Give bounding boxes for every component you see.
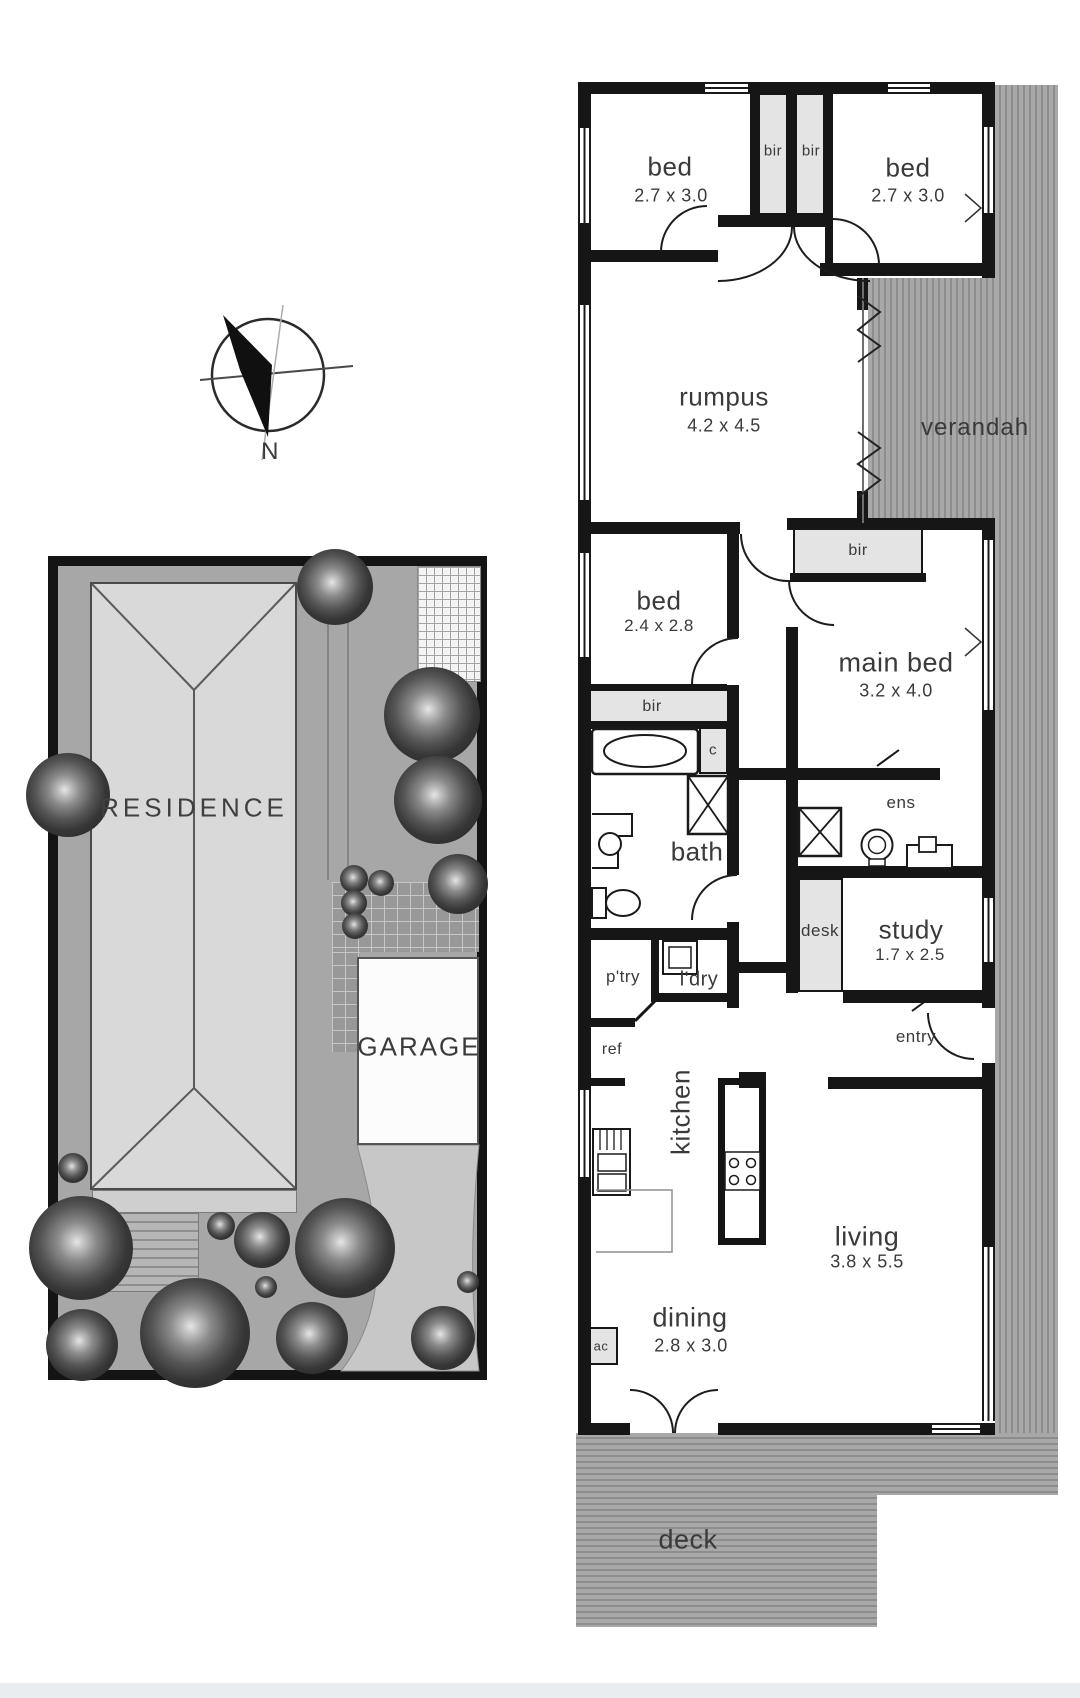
room-dims-dining: 2.8 x 3.0: [654, 1336, 728, 1357]
room-label-bed3: bed: [637, 586, 682, 617]
room-label-bed2: bed: [886, 153, 931, 184]
room-label-kitchen: kitchen: [666, 1069, 697, 1155]
tree: [140, 1278, 250, 1388]
tree: [457, 1271, 479, 1293]
tree: [394, 756, 482, 844]
wall: [727, 685, 739, 875]
wall: [718, 1423, 940, 1435]
tree: [297, 549, 373, 625]
wall: [578, 82, 591, 1435]
room-dims-rumpus: 4.2 x 4.5: [687, 416, 761, 437]
room-label-pantry: p'try: [606, 967, 640, 987]
wall: [982, 523, 995, 540]
label-bir: bir: [764, 143, 782, 160]
wall: [982, 710, 995, 898]
window: [578, 1090, 591, 1177]
room-label-living: living: [835, 1222, 900, 1253]
room-label-study: study: [879, 915, 944, 946]
deck-area: [576, 1433, 877, 1627]
fence-line: [327, 582, 329, 880]
wall: [750, 93, 758, 227]
room-label-main-bed: main bed: [838, 648, 953, 679]
tree: [342, 913, 368, 939]
window: [982, 127, 995, 213]
label-bir: bir: [848, 542, 867, 560]
compass-needle: [223, 315, 272, 437]
wall: [787, 93, 795, 227]
label-ac: ac: [594, 1339, 609, 1354]
wall: [739, 768, 940, 780]
tree: [295, 1198, 395, 1298]
room-label-bed1: bed: [648, 152, 693, 183]
wall: [828, 1077, 983, 1089]
window: [982, 898, 995, 962]
room-label-verandah: verandah: [921, 414, 1029, 442]
tree: [276, 1302, 348, 1374]
tree: [384, 667, 480, 763]
residence-building: [90, 582, 297, 1190]
wall: [718, 215, 825, 227]
wall: [982, 962, 995, 1008]
wall: [578, 684, 727, 691]
wall: [739, 962, 797, 973]
label-ref: ref: [602, 1041, 622, 1059]
wall: [739, 1072, 766, 1088]
window: [932, 1423, 980, 1435]
label-closet: c: [709, 742, 717, 759]
label-desk: desk: [801, 921, 839, 941]
tree: [26, 753, 110, 837]
side-walkway: [995, 85, 1058, 1433]
wall: [578, 928, 739, 940]
tree: [368, 870, 394, 896]
deck-area: [877, 1433, 1058, 1495]
wall: [787, 518, 995, 530]
kitchen-island: [718, 1078, 766, 1245]
wall: [786, 866, 995, 878]
tree: [207, 1212, 235, 1240]
verandah-edge: [862, 278, 864, 523]
tree: [428, 854, 488, 914]
wall: [578, 1078, 625, 1086]
tree: [255, 1276, 277, 1298]
wall: [578, 1423, 630, 1435]
garage-label: GARAGE: [357, 1032, 480, 1063]
window: [888, 82, 930, 94]
residence-label: RESIDENCE: [100, 793, 288, 824]
fence-line: [347, 582, 349, 880]
room-dims-bed1: 2.7 x 3.0: [634, 186, 708, 207]
room-label-ens: ens: [887, 793, 916, 813]
paved-path: [332, 952, 360, 1052]
window: [705, 82, 748, 94]
window: [578, 553, 591, 657]
verandah-area: [868, 278, 995, 523]
wall: [578, 522, 740, 534]
tree: [46, 1309, 118, 1381]
wall: [727, 534, 739, 638]
floorplan-page: N RESIDENCE GARAGE: [0, 0, 1080, 1698]
wall: [786, 627, 798, 993]
room-label-dining: dining: [652, 1303, 727, 1334]
tree: [411, 1306, 475, 1370]
porch: [92, 1190, 297, 1213]
room-label-rumpus: rumpus: [679, 382, 769, 413]
room-label-bath: bath: [671, 837, 724, 868]
tree: [340, 865, 368, 893]
room-label-laundry: l'dry: [680, 969, 719, 992]
room-dims-study: 1.7 x 2.5: [875, 945, 945, 965]
wall: [980, 1423, 995, 1435]
window: [578, 128, 591, 223]
room-dims-bed2: 2.7 x 3.0: [871, 186, 945, 207]
window: [982, 1247, 995, 1421]
window: [982, 540, 995, 710]
tree: [58, 1153, 88, 1183]
room-dims-main-bed: 3.2 x 4.0: [859, 681, 933, 702]
compass-north-label: N: [261, 438, 279, 466]
tree: [234, 1212, 290, 1268]
room-label-deck: deck: [658, 1525, 717, 1556]
window: [578, 305, 591, 500]
label-bir: bir: [802, 143, 820, 160]
trellis: [417, 566, 481, 682]
wall: [982, 1063, 995, 1247]
tree: [29, 1196, 133, 1300]
wall: [578, 1018, 635, 1027]
room-dims-bed3: 2.4 x 2.8: [624, 616, 694, 636]
room-dims-living: 3.8 x 5.5: [830, 1252, 904, 1273]
wall: [843, 990, 983, 1003]
wall: [658, 993, 739, 1002]
wall: [578, 721, 727, 729]
room-label-entry: entry: [896, 1027, 936, 1047]
label-bir: bir: [642, 698, 661, 716]
bottom-strip: [0, 1683, 1080, 1698]
